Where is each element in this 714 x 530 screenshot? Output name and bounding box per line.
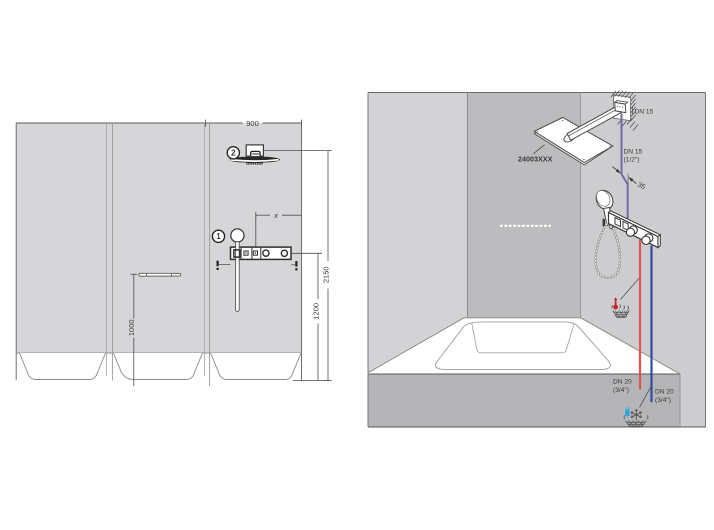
- svg-text:(1/2"): (1/2"): [624, 157, 640, 164]
- svg-text:1: 1: [216, 232, 221, 241]
- svg-text:x: x: [273, 211, 278, 220]
- svg-text:(3/4"): (3/4"): [655, 397, 671, 404]
- svg-text:900: 900: [246, 119, 259, 128]
- svg-text:DN 15: DN 15: [635, 109, 654, 116]
- svg-text:24003XXX: 24003XXX: [518, 155, 553, 164]
- svg-text:DN 20: DN 20: [655, 389, 674, 396]
- svg-text:DN 20: DN 20: [613, 379, 632, 386]
- svg-text:2150: 2150: [321, 266, 330, 283]
- svg-text:2: 2: [231, 149, 236, 158]
- svg-text:1000: 1000: [127, 319, 136, 336]
- svg-text:DN 15: DN 15: [624, 149, 643, 156]
- svg-text:(3/4"): (3/4"): [613, 387, 629, 394]
- svg-text:1200: 1200: [311, 303, 320, 320]
